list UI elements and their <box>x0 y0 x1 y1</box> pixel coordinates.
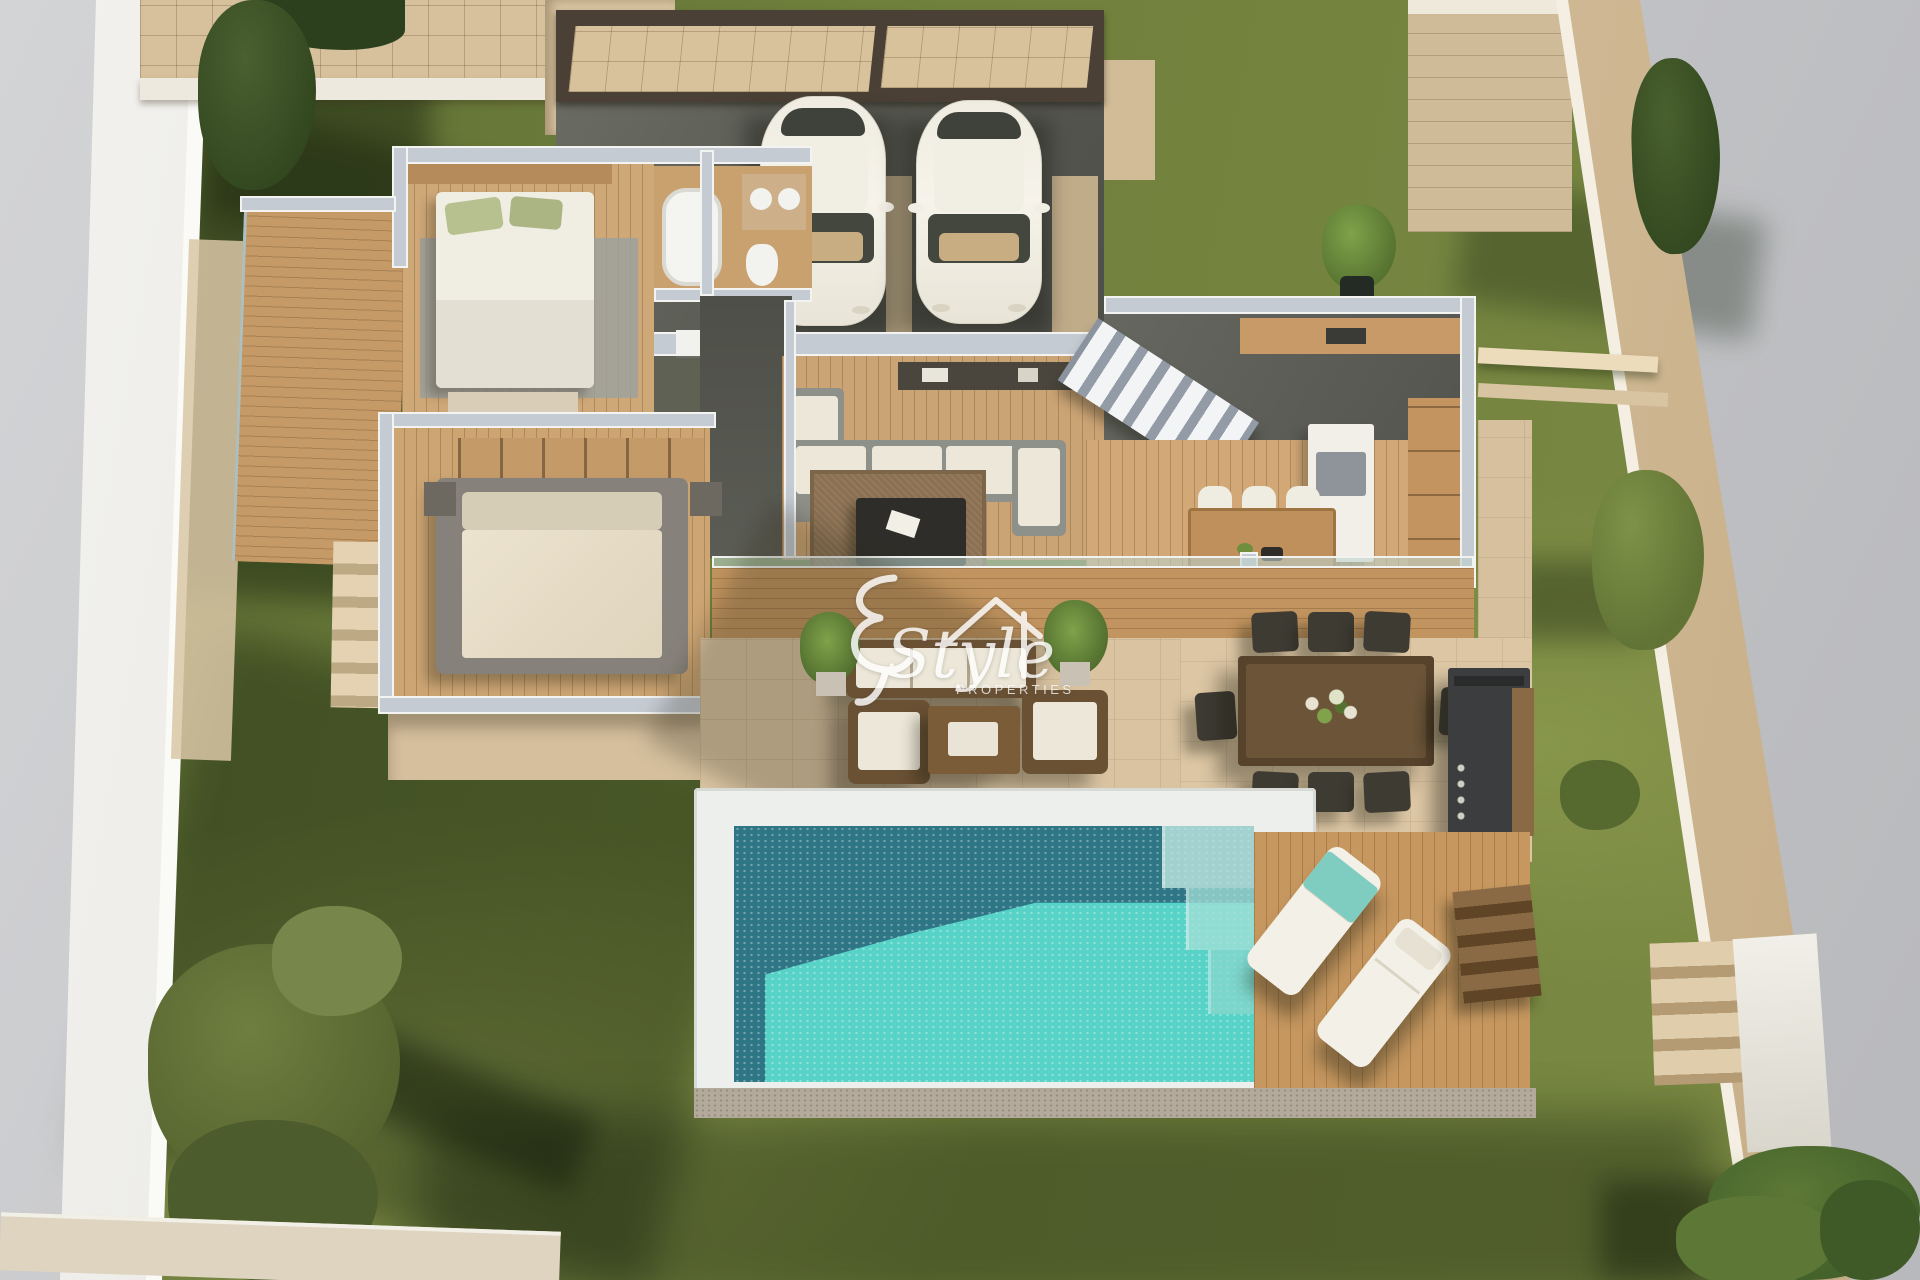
roof-tile-pane-left <box>569 26 876 92</box>
car-headlight-right <box>852 306 870 314</box>
patio-chair-top-3 <box>1363 611 1411 653</box>
bed-blanket <box>436 300 594 388</box>
coffee-table-tray <box>948 722 998 756</box>
watermark-subtitle-text: PROPERTIES <box>956 682 1075 697</box>
sink-basin <box>750 188 772 210</box>
bbq-wood-side <box>1512 688 1534 836</box>
stone-wall-top-right <box>1408 0 1572 232</box>
gravel-border <box>694 1088 1536 1118</box>
pool-step-1 <box>1162 826 1254 888</box>
car-headlight-left <box>932 304 950 312</box>
wall-bedroom-wing-north <box>392 146 812 164</box>
wall-east-wing-north <box>1104 296 1472 314</box>
sofa-return-cushion <box>1018 448 1060 526</box>
armchair-left-cushion <box>858 712 920 770</box>
patio-chair-top-2 <box>1308 612 1354 652</box>
nightstand-right <box>690 482 722 516</box>
coffee-table-book <box>886 510 921 538</box>
bedroom2-bed <box>436 478 688 674</box>
garden-stairs-southeast <box>1650 941 1743 1086</box>
bed2-pillows <box>462 492 662 530</box>
cooktop <box>1326 328 1366 344</box>
car-dashboard <box>939 233 1018 261</box>
car-mirror-left <box>908 203 924 213</box>
patio-chair-top-1 <box>1251 611 1299 653</box>
deck-garden-steps <box>1452 884 1541 1004</box>
wardrobe <box>458 438 704 482</box>
stone-wall-cap <box>1408 0 1572 14</box>
sink-basin-2 <box>778 188 800 210</box>
sideboard-decor <box>922 368 948 382</box>
wall-bedrooms-divider <box>386 412 716 428</box>
pool-water <box>734 826 1254 1082</box>
car-roof <box>934 139 1023 212</box>
bedroom1-bed <box>436 192 594 388</box>
wall-bedroom2-west <box>378 412 394 712</box>
bedroom1-foot-bench <box>448 392 578 412</box>
car-2 <box>916 100 1042 324</box>
car-rear-window <box>781 108 865 135</box>
roof-tile-pane-right <box>881 26 1094 88</box>
bed-pillow-green-2 <box>509 196 563 230</box>
pool-step-2 <box>1186 888 1254 950</box>
centerpiece-flowers <box>1298 686 1368 730</box>
island-sink <box>1316 452 1366 496</box>
sofa-return <box>1012 440 1066 536</box>
lounger-backrest-line <box>1374 958 1420 995</box>
front-door-pillar-2 <box>676 330 702 358</box>
watermark-logo: Style PROPERTIES <box>828 548 1098 718</box>
nightstand-left <box>424 482 456 516</box>
bed-pillow-green-1 <box>444 196 504 235</box>
wall-deck-north <box>240 196 396 212</box>
bbq-grill-top <box>1454 676 1524 686</box>
pool-south-shadow <box>420 1115 1710 1280</box>
villa-plan-render: Style PROPERTIES <box>0 0 1920 1280</box>
wall-east <box>1460 296 1476 588</box>
wall-bath-hall <box>700 150 714 296</box>
sideboard-decor-2 <box>1018 368 1038 382</box>
bed2-duvet <box>462 530 662 658</box>
kitchen-counter-north <box>1240 318 1464 354</box>
bbq-knobs <box>1456 760 1466 820</box>
parking-pad-right <box>1052 176 1098 336</box>
car-rear-window <box>937 112 1021 139</box>
side-terrace-stone <box>1478 420 1532 638</box>
patio-dining-table <box>1238 656 1434 766</box>
toilet <box>746 244 778 286</box>
white-wall-southeast <box>1733 933 1832 1152</box>
patio-chair-bottom-3 <box>1363 771 1411 813</box>
car-mirror-right <box>878 202 894 212</box>
bathroom-vanity <box>742 174 806 230</box>
car-headlight-right <box>1008 304 1026 312</box>
patio-chair-left <box>1194 691 1237 742</box>
car-windshield <box>928 214 1030 263</box>
big-tree-southeast-2 <box>1676 1196 1836 1280</box>
